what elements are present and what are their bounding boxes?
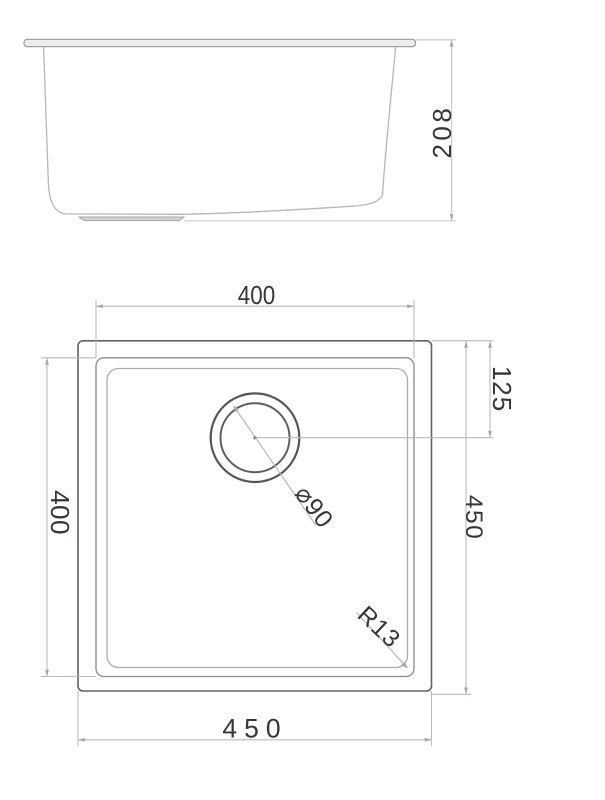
svg-text:125: 125 [487, 366, 517, 412]
svg-text:400: 400 [45, 490, 75, 535]
svg-text:450: 450 [460, 495, 487, 540]
svg-text:450: 450 [222, 714, 287, 744]
svg-text:400: 400 [238, 282, 275, 311]
svg-text:208: 208 [427, 105, 457, 159]
